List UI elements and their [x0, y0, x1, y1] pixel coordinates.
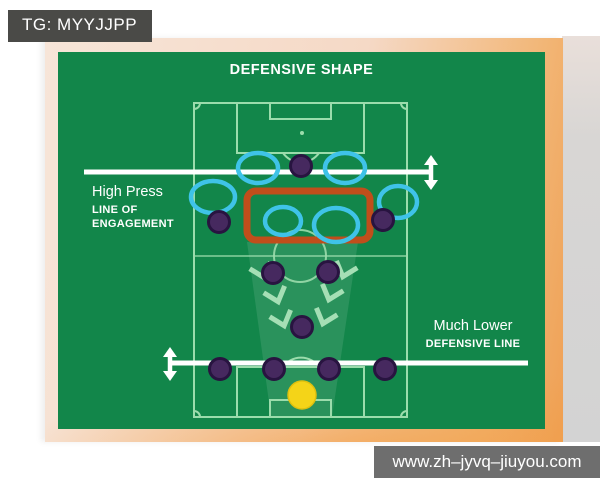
tg-badge: TG: MYYJJPP	[8, 10, 152, 42]
high-press-annotation: High Press LINE OF ENGAGEMENT	[92, 184, 174, 231]
watermark: www.zh–jyvq–jiuyou.com	[374, 446, 600, 478]
defensive-line-annotation: Much Lower DEFENSIVE LINE	[415, 318, 531, 351]
right-gutter	[562, 36, 600, 442]
high-press-title: High Press	[92, 184, 174, 200]
high-press-sub2: ENGAGEMENT	[92, 217, 174, 231]
defensive-line-title: Much Lower	[415, 318, 531, 334]
defensive-line-sub1: DEFENSIVE LINE	[415, 337, 531, 351]
pitch-card	[58, 52, 545, 429]
high-press-sub1: LINE OF	[92, 203, 174, 217]
diagram-title: DEFENSIVE SHAPE	[58, 62, 545, 78]
page: DEFENSIVE SHAPE High Press LINE OF ENGAG…	[0, 0, 600, 480]
